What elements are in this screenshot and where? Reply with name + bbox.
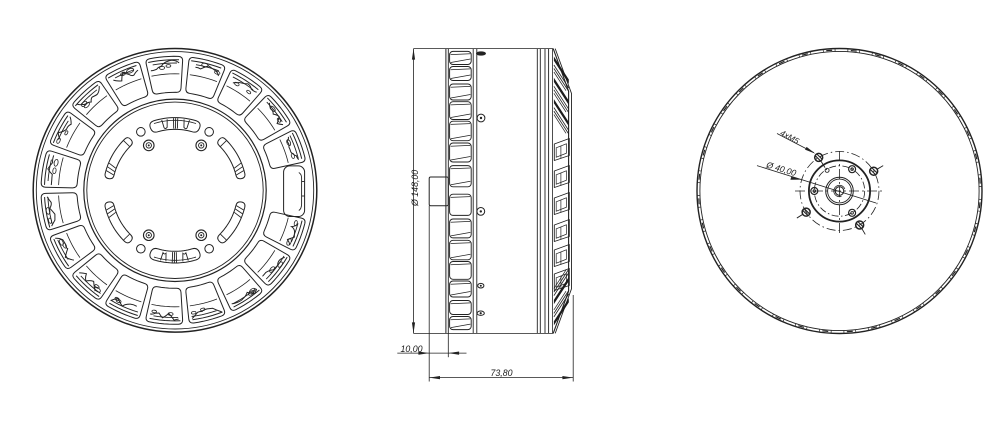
- svg-text:73,80: 73,80: [491, 368, 513, 378]
- svg-text:10,00: 10,00: [401, 344, 423, 354]
- svg-text:Ø 148,00: Ø 148,00: [410, 170, 420, 207]
